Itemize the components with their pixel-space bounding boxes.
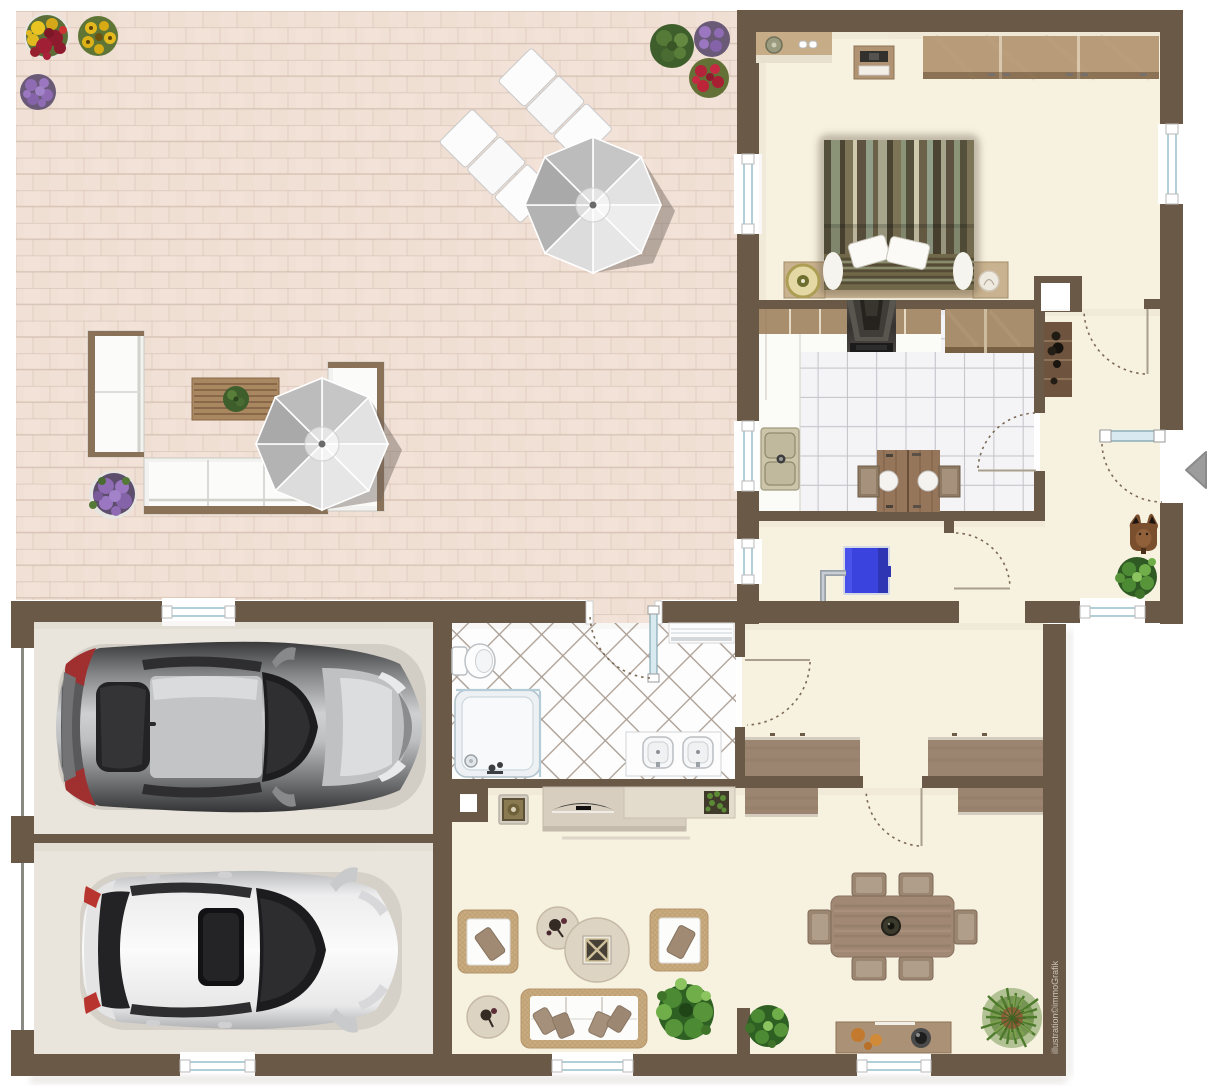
svg-text:illustration©immoGrafik: illustration©immoGrafik (1050, 960, 1060, 1054)
